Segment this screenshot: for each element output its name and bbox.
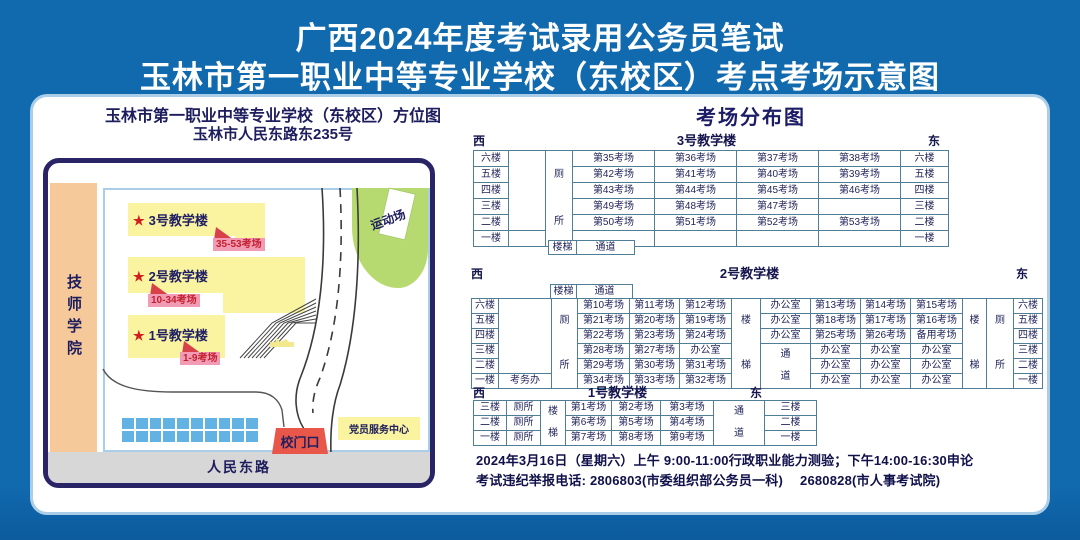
- stairs-cell: 楼梯: [541, 401, 566, 446]
- floor-label: 六楼: [474, 151, 509, 167]
- restroom-cell: 厕所: [507, 401, 541, 416]
- floor-label: 三楼: [901, 199, 949, 215]
- floor-label: 一楼: [474, 431, 507, 446]
- exam-room-cell: 第14考场: [861, 299, 911, 314]
- exam-room-cell: 第6考场: [566, 416, 612, 431]
- floor-label: 五楼: [472, 314, 499, 329]
- exam-room-cell: 第49考场: [573, 199, 655, 215]
- parking-cell: [150, 431, 162, 442]
- office-cell: 办公室: [911, 374, 963, 389]
- parking-cell: [163, 431, 175, 442]
- restroom-cell: 厕所: [552, 299, 578, 389]
- school-gate: 校门口: [272, 428, 328, 454]
- building-3-table: 六楼厕所第35考场第36考场第37考场第38考场六楼五楼第42考场第41考场第4…: [473, 150, 949, 247]
- exam-room-cell: 第43考场: [573, 183, 655, 199]
- exam-room-cell: 第37考场: [737, 151, 819, 167]
- empty-cell: [509, 231, 546, 247]
- parking-cell: [219, 431, 231, 442]
- footer-info: 2024年3月16日（星期六）上午 9:00-11:00行政职业能力测验；下午1…: [476, 451, 1046, 491]
- office-cell: 办公室: [811, 344, 861, 359]
- exam-room-cell: 第51考场: [655, 215, 737, 231]
- floor-label: 三楼: [474, 199, 509, 215]
- star-icon: ★: [133, 213, 145, 228]
- floor-label: 二楼: [474, 215, 509, 231]
- campus-map-inner: 技师学院 运动场: [48, 163, 430, 483]
- east-label: 东: [750, 384, 762, 401]
- building-2-table: 六楼厕所第10考场第11考场第12考场楼梯办公室第13考场第14考场第15考场楼…: [471, 298, 1043, 389]
- parking-cell: [150, 418, 162, 429]
- parking-cell: [136, 431, 148, 442]
- floor-label: 二楼: [1014, 359, 1043, 374]
- banner-title-line2: 玉林市第一职业中等专业学校（东校区）考点考场示意图: [0, 52, 1080, 97]
- exam-room-cell: 第46考场: [819, 183, 901, 199]
- exam-room-cell: 第29考场: [578, 359, 630, 374]
- office-cell: 办公室: [761, 314, 811, 329]
- exam-room-cell: 第26考场: [861, 329, 911, 344]
- exam-room-cell: 第27考场: [630, 344, 680, 359]
- exam-room-cell: 第38考场: [819, 151, 901, 167]
- exam-room-cell: 第28考场: [578, 344, 630, 359]
- parking-cell: [122, 418, 134, 429]
- stairs-cell: 楼梯: [548, 240, 577, 255]
- exam-room-cell: 第47考场: [737, 199, 819, 215]
- building-3-stairs-passage: 楼梯通道: [548, 240, 635, 255]
- floor-label: 二楼: [901, 215, 949, 231]
- office-cell: 办公室: [761, 329, 811, 344]
- parking-cell: [191, 431, 203, 442]
- exam-room-cell: 第17考场: [861, 314, 911, 329]
- exam-room-cell: 第24考场: [680, 329, 732, 344]
- exam-room-cell: 第36考场: [655, 151, 737, 167]
- floor-label: 一楼: [901, 231, 949, 247]
- exam-room-cell: 第2考场: [612, 401, 661, 416]
- star-icon: ★: [133, 328, 145, 343]
- steps-hatch: [240, 299, 316, 358]
- office-cell: 办公室: [811, 374, 861, 389]
- office-cell: 办公室: [861, 374, 911, 389]
- floor-label: 三楼: [472, 344, 499, 359]
- report-hotline: 考试违纪举报电话: 2806803(市委组织部公务员一科) 2680828(市人…: [476, 471, 1046, 491]
- restroom-cell: 厕所: [987, 299, 1014, 389]
- exam-room-cell: 第23考场: [630, 329, 680, 344]
- floor-label: 六楼: [472, 299, 499, 314]
- exam-room-cell: 第11考场: [630, 299, 680, 314]
- backup-room-cell: 备用考场: [911, 329, 963, 344]
- parking-cell: [177, 431, 189, 442]
- star-icon: ★: [133, 269, 145, 284]
- map-title: 玉林市第一职业中等专业学校（东校区）方位图: [61, 107, 485, 126]
- floor-label: 六楼: [901, 151, 949, 167]
- parking-cell: [136, 418, 148, 429]
- parking-grid: [122, 418, 258, 442]
- parking-cell: [205, 418, 217, 429]
- exam-schedule: 2024年3月16日（星期六）上午 9:00-11:00行政职业能力测验；下午1…: [476, 451, 1046, 471]
- building-2-table-name: 2号教学楼: [720, 263, 779, 282]
- exam-room-cell: 第40考场: [737, 167, 819, 183]
- building-3-rooms-label: 35-53考场: [213, 238, 265, 251]
- parking-cell: [122, 431, 134, 442]
- exam-room-cell: 第3考场: [661, 401, 714, 416]
- floor-label: 一楼: [765, 431, 817, 446]
- exam-room-cell: 第10考场: [578, 299, 630, 314]
- floor-label: 五楼: [474, 167, 509, 183]
- floor-label: 四楼: [901, 183, 949, 199]
- exam-room-cell: 第52考场: [737, 215, 819, 231]
- office-cell: 办公室: [911, 344, 963, 359]
- exam-room-cell: 第22考场: [578, 329, 630, 344]
- floor-label: 六楼: [1014, 299, 1043, 314]
- parking-cell: [232, 418, 244, 429]
- office-cell: 办公室: [680, 344, 732, 359]
- building-3-table-header: 西 3号教学楼 东: [473, 134, 940, 149]
- exam-room-cell: 第1考场: [566, 401, 612, 416]
- parking-cell: [205, 431, 217, 442]
- restroom-cell: 厕所: [507, 431, 541, 446]
- empty-cell: [819, 231, 901, 247]
- exam-room-cell: 第15考场: [911, 299, 963, 314]
- building-1-name: ★1号教学楼: [133, 325, 208, 344]
- exam-room-cell: 第30考场: [630, 359, 680, 374]
- building-3-name: ★3号教学楼: [133, 210, 208, 229]
- empty-cell: [819, 199, 901, 215]
- exam-room-cell: 第42考场: [573, 167, 655, 183]
- parking-cell: [219, 418, 231, 429]
- building-2-table-header: 西 2号教学楼 东: [471, 267, 1028, 282]
- east-label: 东: [1016, 265, 1028, 282]
- east-label: 东: [928, 132, 940, 149]
- map-title-block: 玉林市第一职业中等专业学校（东校区）方位图 玉林市人民东路东235号: [61, 107, 485, 144]
- building-1-table-header: 西 1号教学楼 东: [473, 386, 808, 401]
- party-service-center: 党员服务中心: [338, 417, 420, 440]
- empty-cell: [499, 299, 552, 374]
- floor-label: 五楼: [901, 167, 949, 183]
- exam-room-cell: 第4考场: [661, 416, 714, 431]
- floor-label: 四楼: [474, 183, 509, 199]
- floor-label: 二楼: [474, 416, 507, 431]
- building-2-name: ★2号教学楼: [133, 266, 208, 285]
- restroom-cell: 厕所: [546, 151, 573, 247]
- map-address: 玉林市人民东路东235号: [61, 126, 485, 144]
- exam-room-cell: 第53考场: [819, 215, 901, 231]
- building-2-stairs-passage: 楼梯通道: [550, 284, 633, 299]
- parking-cell: [191, 418, 203, 429]
- office-cell: 办公室: [911, 359, 963, 374]
- exam-room-cell: 第25考场: [811, 329, 861, 344]
- stairs-cell: 楼梯: [550, 284, 577, 299]
- parking-cell: [232, 431, 244, 442]
- office-cell: 办公室: [811, 359, 861, 374]
- parking-cell: [177, 418, 189, 429]
- passage-cell: 通道: [576, 240, 635, 255]
- exam-room-cell: 第12考场: [680, 299, 732, 314]
- poster: { "banner": { "line1": "广西2024年度考试录用公务员笔…: [0, 0, 1080, 540]
- passage-cell: 通道: [761, 344, 811, 389]
- exam-room-cell: 第7考场: [566, 431, 612, 446]
- exam-room-cell: 第44考场: [655, 183, 737, 199]
- parking-cell: [246, 418, 258, 429]
- empty-cell: [737, 231, 819, 247]
- exam-room-cell: 第41考场: [655, 167, 737, 183]
- exam-room-cell: 第13考场: [811, 299, 861, 314]
- content-sheet: 玉林市第一职业中等专业学校（东校区）方位图 玉林市人民东路东235号 技师学院 …: [33, 97, 1047, 512]
- floor-label: 五楼: [1014, 314, 1043, 329]
- passage-cell: 通道: [714, 401, 765, 446]
- parking-cell: [163, 418, 175, 429]
- floor-label: 一楼: [474, 231, 509, 247]
- floor-label: 三楼: [765, 401, 817, 416]
- stairs-cell: 楼梯: [732, 299, 761, 389]
- building-1-table: 三楼厕所楼梯第1考场第2考场第3考场通道三楼二楼厕所第6考场第5考场第4考场二楼…: [473, 400, 817, 446]
- exam-room-cell: 第5考场: [612, 416, 661, 431]
- exam-room-cell: 第35考场: [573, 151, 655, 167]
- main-road-strip: 人民东路: [48, 452, 430, 483]
- floor-label: 三楼: [1014, 344, 1043, 359]
- parking-cell: [246, 431, 258, 442]
- office-cell: 办公室: [861, 359, 911, 374]
- exam-room-cell: 第48考场: [655, 199, 737, 215]
- exam-room-cell: 第39考场: [819, 167, 901, 183]
- exam-room-cell: 第45考场: [737, 183, 819, 199]
- floor-label: 四楼: [472, 329, 499, 344]
- floor-label: 一楼: [1014, 374, 1043, 389]
- exam-room-cell: 第8考场: [612, 431, 661, 446]
- exam-room-cell: 第9考场: [661, 431, 714, 446]
- restroom-cell: 厕所: [507, 416, 541, 431]
- exam-room-cell: 第19考场: [680, 314, 732, 329]
- campus-map: 技师学院 运动场: [43, 158, 435, 488]
- exam-room-cell: 第16考场: [911, 314, 963, 329]
- exam-room-cell: 第20考场: [630, 314, 680, 329]
- west-label: 西: [473, 384, 485, 401]
- exam-room-cell: 第18考场: [811, 314, 861, 329]
- exam-room-cell: 第31考场: [680, 359, 732, 374]
- building-2-rooms-label: 10-34考场: [148, 294, 200, 307]
- building-3-table-name: 3号教学楼: [677, 130, 736, 149]
- stairs-cell: 楼梯: [963, 299, 987, 389]
- west-label: 西: [471, 265, 483, 282]
- floor-label: 二楼: [765, 416, 817, 431]
- floor-label: 三楼: [474, 401, 507, 416]
- main-road-label: 人民东路: [48, 457, 430, 477]
- empty-cell: [655, 231, 737, 247]
- exam-room-cell: 第50考场: [573, 215, 655, 231]
- passage-cell: 通道: [576, 284, 633, 299]
- floor-label: 二楼: [472, 359, 499, 374]
- west-label: 西: [473, 132, 485, 149]
- building-1-table-name: 1号教学楼: [588, 382, 647, 401]
- floor-label: 四楼: [1014, 329, 1043, 344]
- distribution-title: 考场分布图: [455, 101, 1047, 130]
- office-cell: 办公室: [761, 299, 811, 314]
- empty-cell: [509, 151, 546, 231]
- building-1-rooms-label: 1-9考场: [180, 352, 220, 365]
- office-cell: 办公室: [861, 344, 911, 359]
- exam-room-cell: 第21考场: [578, 314, 630, 329]
